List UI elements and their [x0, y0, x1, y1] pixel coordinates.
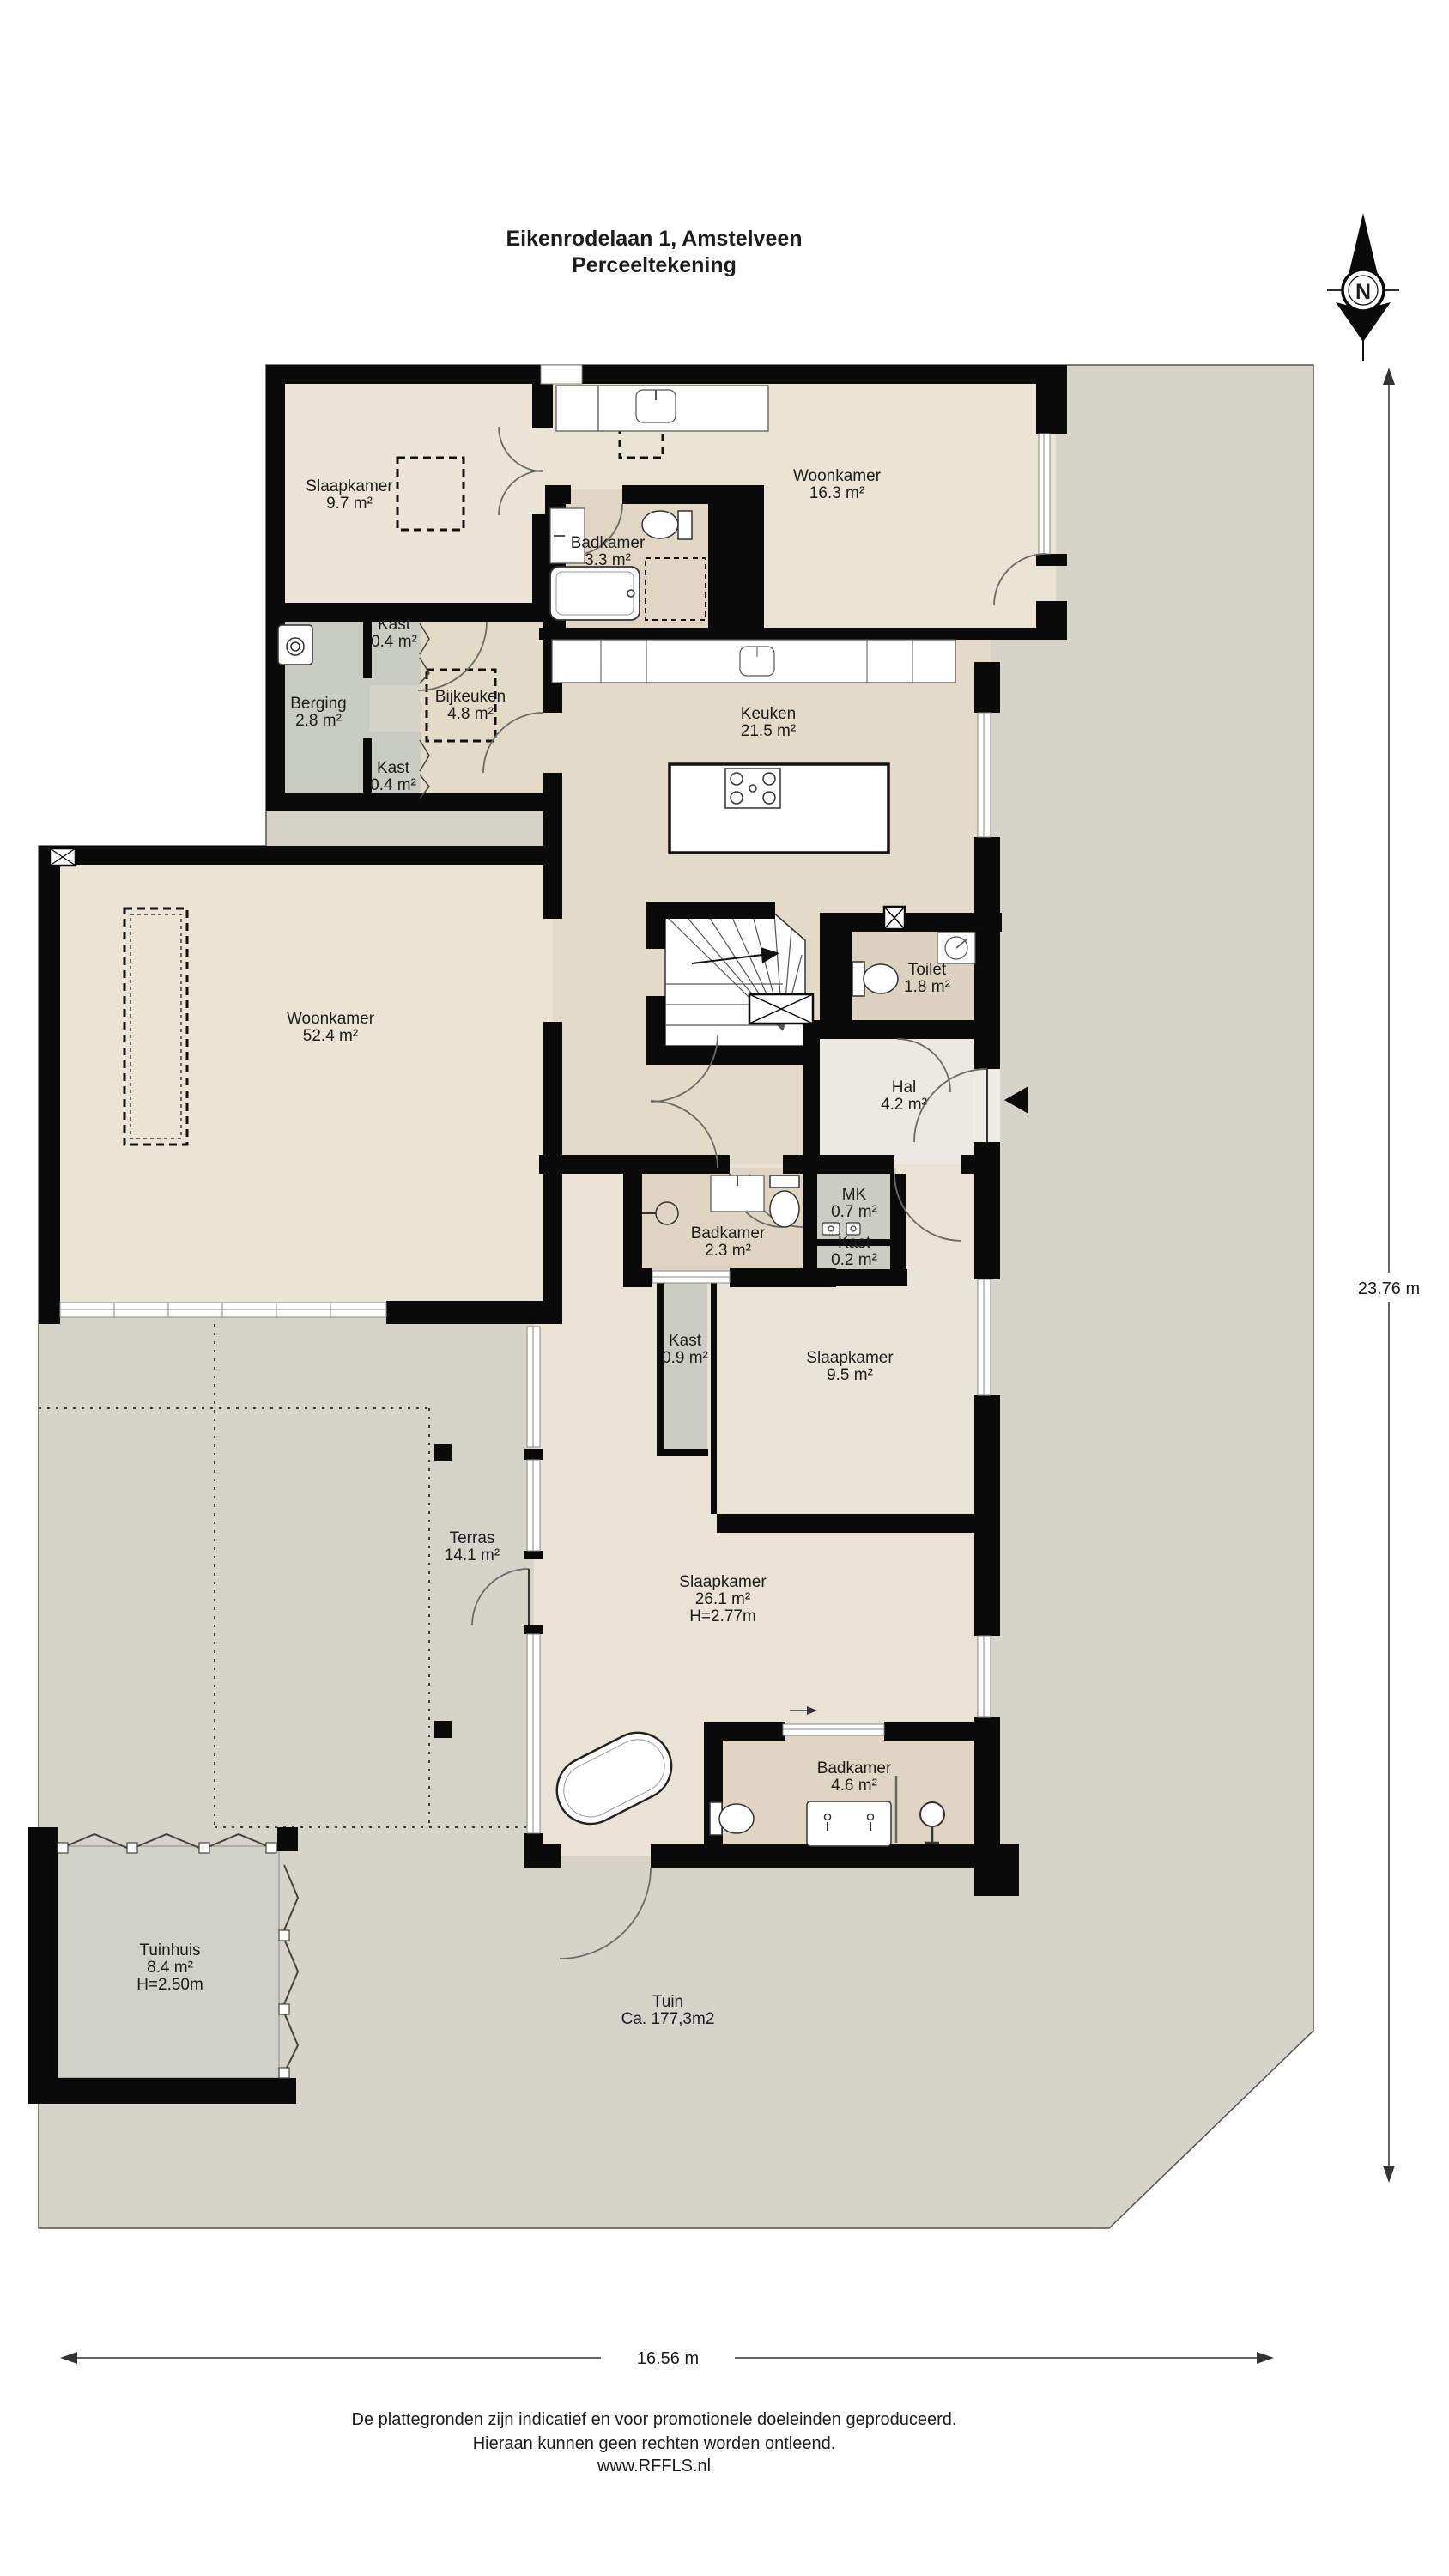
room-label-tuin-line2: Ca. 177,3m2	[621, 2010, 715, 2028]
walls	[651, 1844, 1000, 1868]
shower-icon	[920, 1802, 944, 1826]
room-label-kast-4: Kast0.9 m²	[662, 1332, 708, 1367]
fixtures	[556, 386, 598, 431]
meter-cupboard-icons	[851, 1226, 856, 1231]
tuinhuis-folding-doors-top	[266, 1843, 276, 1853]
walls	[623, 1268, 652, 1287]
walls	[803, 1020, 1000, 1039]
staircase	[665, 912, 805, 1046]
room-label-slaapkamer-2-line2: 9.5 m²	[827, 1366, 873, 1384]
walls	[1036, 365, 1067, 434]
room-label-kast-3: Kast0.2 m²	[831, 1234, 877, 1269]
walls	[266, 603, 562, 622]
dimension-horizontal	[60, 2352, 77, 2364]
tuinhuis-structure	[28, 1827, 58, 2104]
floorplan-page: Eikenrodelaan 1, Amstelveen Perceelteken…	[0, 0, 1449, 2576]
room-label-kast-3-line2: 0.2 m²	[831, 1251, 877, 1269]
room-label-badkamer-1-line1: Badkamer	[571, 534, 646, 552]
room-label-mk-line1: MK	[842, 1186, 867, 1204]
room-label-kast-4-line1: Kast	[669, 1332, 702, 1350]
stove-icon	[725, 769, 780, 808]
room-floors	[712, 1275, 987, 1520]
room-label-berging-line2: 2.8 m²	[295, 712, 342, 730]
walls	[711, 1279, 717, 1514]
walls	[783, 1155, 894, 1174]
room-label-kast-1: Kast0.4 m²	[371, 616, 417, 651]
dimension-horizontal	[1257, 2352, 1274, 2364]
room-label-slaapkamer-3-line2: 26.1 m²	[695, 1590, 750, 1608]
walls	[974, 1844, 1019, 1896]
walls	[803, 1039, 820, 1174]
tuinhuis-folding-doors-right	[279, 2004, 289, 2014]
walls	[266, 365, 1067, 384]
room-label-kast-2: Kast0.4 m²	[370, 759, 416, 794]
walls	[524, 1625, 543, 1634]
room-label-tuinhuis-line2: 8.4 m²	[147, 1959, 193, 1977]
room-label-tuinhuis-line1: Tuinhuis	[139, 1941, 200, 1959]
fixtures	[598, 386, 768, 431]
walls	[890, 1174, 906, 1271]
footer-disclaimer: De plattegronden zijn indicatief en voor…	[352, 2410, 957, 2476]
footer-line2: Hieraan kunnen geen rechten worden ontle…	[473, 2434, 836, 2453]
room-label-kast-1-line2: 0.4 m²	[371, 633, 417, 651]
walls	[1036, 554, 1067, 566]
dimension-vertical: 23.76 m	[1329, 368, 1449, 2183]
room-label-hal-line2: 4.2 m²	[881, 1096, 927, 1114]
tuinhuis-folding-doors-top	[127, 1843, 137, 1853]
room-label-badkamer-3-line2: 4.6 m²	[831, 1777, 877, 1795]
walls	[524, 1449, 543, 1460]
room-label-badkamer-3-line1: Badkamer	[817, 1759, 892, 1777]
dimension-vertical	[1383, 2166, 1395, 2183]
room-label-berging: Berging2.8 m²	[290, 695, 347, 730]
walls	[646, 1046, 820, 1065]
room-label-kast-4-line2: 0.9 m²	[662, 1349, 708, 1367]
room-label-hal-line1: Hal	[892, 1078, 917, 1097]
room-label-bijkeuken-line2: 4.8 m²	[447, 705, 494, 723]
compass-north-label: N	[1355, 280, 1371, 304]
room-label-mk-line2: 0.7 m²	[831, 1203, 877, 1221]
walls	[532, 384, 553, 428]
walls	[622, 485, 764, 504]
room-label-terras-line1: Terras	[450, 1529, 495, 1547]
page-title: Eikenrodelaan 1, Amstelveen Perceelteken…	[506, 227, 802, 277]
bathtub-icon	[550, 567, 640, 620]
room-label-slaapkamer-3-line1: Slaapkamer	[679, 1573, 767, 1591]
tuinhuis-folding-doors-right	[279, 1930, 289, 1941]
walls	[545, 485, 571, 504]
windows	[541, 365, 582, 384]
room-label-woonkamer-line2: 52.4 m²	[303, 1027, 358, 1045]
dimension-vertical-label: 23.76 m	[1358, 1279, 1420, 1298]
room-label-badkamer-2-line2: 2.3 m²	[705, 1242, 751, 1260]
stove-icon	[725, 769, 780, 808]
walls	[524, 1844, 561, 1868]
washing-machine-icon	[278, 625, 312, 665]
room-label-kast-2-line1: Kast	[377, 759, 410, 777]
washing-machine-icon	[291, 642, 300, 651]
room-label-slaapkamer-1-line2: 9.7 m²	[326, 495, 373, 513]
room-label-kast-2-line2: 0.4 m²	[370, 776, 416, 794]
tuinhuis-structure	[277, 1827, 298, 1851]
walls	[884, 1722, 974, 1741]
room-label-tuinhuis-line3: H=2.50m	[136, 1976, 203, 1994]
walls	[803, 1269, 907, 1286]
toilet-fixtures	[864, 964, 898, 993]
room-label-toilet-line1: Toilet	[908, 961, 947, 979]
room-floors	[276, 374, 550, 622]
walls	[1036, 601, 1067, 640]
room-label-keuken-line1: Keuken	[741, 705, 796, 723]
toilet-icon	[642, 511, 678, 538]
badkamer3-fixtures	[807, 1801, 891, 1846]
tuinhuis-folding-doors-top	[58, 1843, 68, 1853]
walls	[803, 1174, 817, 1271]
compass-icon: N	[1327, 213, 1399, 361]
walls	[961, 1155, 1000, 1174]
room-label-woonkamer-boven-line2: 16.3 m²	[809, 484, 864, 502]
walls	[266, 365, 285, 811]
walls	[539, 628, 1067, 640]
dimension-horizontal-label: 16.56 m	[637, 2349, 699, 2368]
walls	[524, 1551, 543, 1559]
room-label-woonkamer-boven-line1: Woonkamer	[793, 467, 882, 485]
dimension-vertical	[1383, 368, 1395, 385]
badkamer2-fixtures	[770, 1176, 799, 1188]
room-label-badkamer-2-line1: Badkamer	[691, 1224, 766, 1242]
fixtures	[552, 640, 955, 683]
walls	[974, 1717, 1000, 1844]
floorplan-drawing: Eikenrodelaan 1, Amstelveen Perceelteken…	[0, 0, 1449, 2576]
badkamer2-fixtures	[770, 1191, 799, 1227]
walls	[708, 504, 764, 628]
title-line1: Eikenrodelaan 1, Amstelveen	[506, 227, 802, 251]
walls	[386, 1301, 562, 1324]
badkamer1-fixtures	[678, 511, 692, 539]
room-label-keuken-line2: 21.5 m²	[741, 722, 796, 740]
walls	[39, 846, 60, 1301]
walls	[646, 902, 665, 949]
title-line2: Perceeltekening	[572, 253, 737, 277]
walls	[39, 1301, 60, 1324]
walls	[974, 662, 1000, 713]
room-label-terras: Terras14.1 m²	[445, 1529, 500, 1564]
room-label-keuken: Keuken21.5 m²	[741, 705, 796, 740]
room-label-kast-1-line1: Kast	[378, 616, 411, 634]
room-label-toilet: Toilet1.8 m²	[904, 961, 950, 996]
meter-cupboard-icons	[828, 1226, 834, 1231]
walls	[266, 793, 562, 811]
room-label-badkamer-1-line2: 3.3 m²	[585, 551, 631, 569]
room-label-slaapkamer-1-line1: Slaapkamer	[306, 477, 393, 495]
pergola-posts	[434, 1444, 452, 1461]
room-label-bijkeuken-line1: Bijkeuken	[435, 688, 506, 706]
walls	[974, 913, 1000, 1069]
walls	[717, 1514, 1000, 1533]
dimension-horizontal: 16.56 m	[60, 2344, 1274, 2372]
fixtures	[556, 386, 768, 431]
walls	[646, 902, 775, 919]
walls	[539, 1155, 730, 1174]
tuinhuis-structure	[28, 2078, 296, 2104]
toilet-fixtures	[852, 962, 864, 996]
room-label-berging-line1: Berging	[290, 695, 347, 713]
walls	[524, 1833, 543, 1844]
pergola-posts	[434, 1721, 452, 1738]
room-label-woonkamer-line1: Woonkamer	[287, 1010, 375, 1028]
room-label-toilet-line2: 1.8 m²	[904, 978, 950, 996]
room-label-slaapkamer-3-line3: H=2.77m	[689, 1607, 756, 1625]
walls	[974, 837, 1000, 913]
badkamer3-fixtures	[719, 1804, 754, 1833]
tuinhuis-folding-doors-right	[279, 2068, 289, 2078]
room-label-tuin-line1: Tuin	[652, 1993, 683, 2011]
tuinhuis-folding-doors-top	[199, 1843, 209, 1853]
footer-line3[interactable]: www.RFFLS.nl	[597, 2457, 711, 2476]
walls	[39, 846, 562, 865]
room-label-terras-line2: 14.1 m²	[445, 1546, 500, 1564]
room-label-slaapkamer-2-line1: Slaapkamer	[806, 1349, 894, 1367]
footer-line1: De plattegronden zijn indicatief en voor…	[352, 2410, 957, 2429]
walls	[657, 1449, 708, 1456]
compass-icon	[1349, 213, 1378, 275]
room-label-kast-3-line1: Kast	[838, 1234, 871, 1252]
